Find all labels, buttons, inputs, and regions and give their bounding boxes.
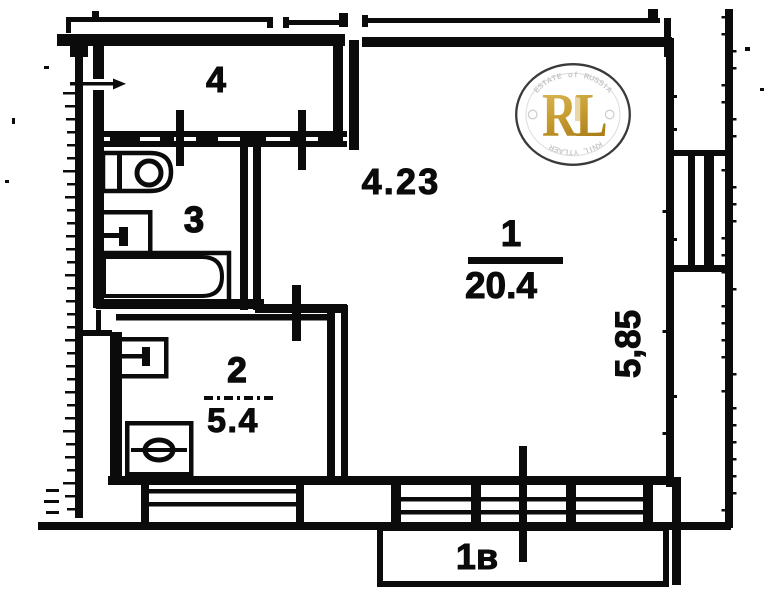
svg-text:1в: 1в: [456, 536, 498, 577]
svg-text:5.4: 5.4: [207, 402, 259, 440]
svg-text:2: 2: [227, 351, 246, 390]
svg-text:4.23: 4.23: [362, 161, 441, 202]
svg-text:RL: RL: [542, 81, 606, 150]
svg-text:20.4: 20.4: [465, 265, 537, 306]
svg-text:4: 4: [206, 59, 226, 100]
svg-text:o: o: [568, 70, 573, 79]
svg-text:1: 1: [501, 213, 522, 254]
svg-text:5,85: 5,85: [609, 310, 648, 378]
svg-text:3: 3: [184, 199, 204, 240]
